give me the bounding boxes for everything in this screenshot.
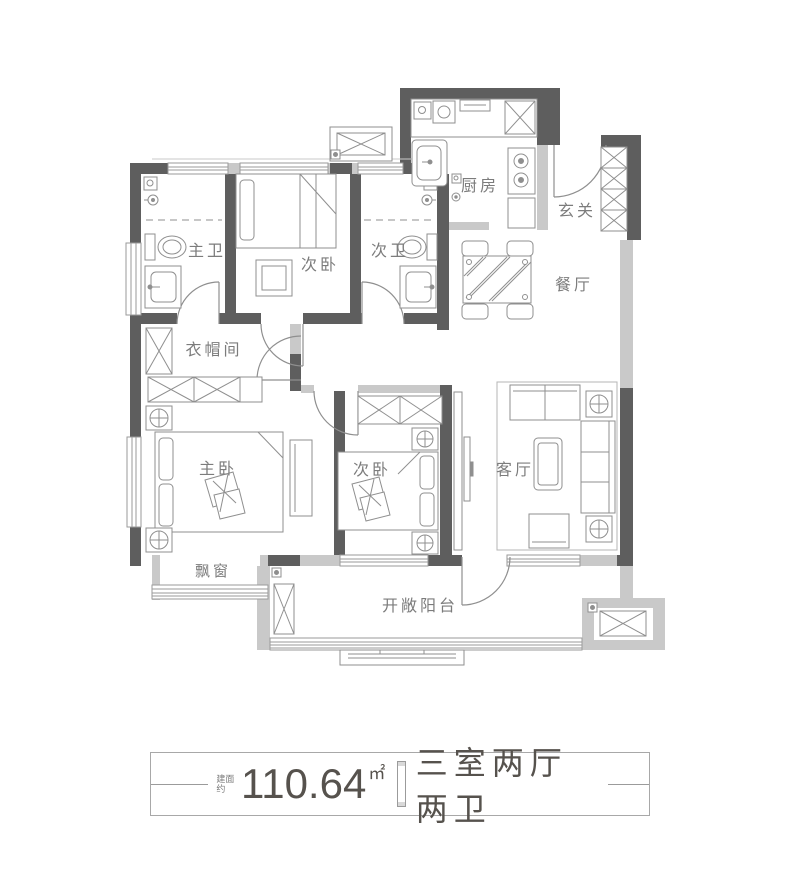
kitchen-fixtures [411, 99, 537, 228]
bedroom-bottom-furniture [338, 428, 438, 554]
fridge-icon [505, 101, 535, 134]
room-label-living: 客厅 [496, 461, 534, 479]
dining-set [462, 241, 533, 319]
room-label-master-bath: 主卫 [188, 242, 226, 260]
balcony-step [340, 650, 464, 665]
window-top-master-bath [168, 163, 228, 174]
room-label-kitchen: 厨房 [461, 177, 499, 195]
plant-icon [586, 391, 612, 417]
room-label-dining: 餐厅 [555, 276, 593, 294]
elevator-shaft-hatch [601, 147, 627, 231]
door-master-bath [177, 282, 219, 324]
window-bottom-bedroom [340, 555, 428, 566]
window-top-bedroom [240, 163, 328, 174]
nightstand-lamp-icon [412, 428, 438, 450]
door-second-bath [362, 282, 404, 324]
chair [462, 304, 488, 319]
door-balcony [462, 557, 510, 605]
window-top-second-bath [358, 163, 403, 174]
room-label-second-bath: 次卫 [371, 242, 409, 260]
bed-bench [290, 440, 312, 516]
nightstand-lamp-icon [146, 406, 172, 430]
bed [155, 432, 283, 532]
chair [507, 241, 533, 256]
caption-layout-text: 三室两厅两卫 [416, 738, 598, 830]
chair [507, 304, 533, 319]
room-label-bay-window: 飘窗 [195, 562, 231, 580]
caption-divider [397, 761, 405, 807]
door-entry [554, 145, 606, 197]
room-label-cloakroom: 衣帽间 [185, 341, 242, 359]
room-label-foyer: 玄关 [558, 202, 596, 220]
caption-area-unit: ㎡ [368, 759, 385, 784]
caption-area-value: 110.64 [241, 760, 366, 808]
window-bottom-living [507, 555, 580, 566]
room-label-balcony: 开敞阳台 [382, 597, 458, 615]
caption-area-prefix: 建面约 [216, 774, 238, 794]
dining-table [463, 256, 531, 303]
room-label-bedroom-top: 次卧 [301, 256, 339, 274]
room-label-master-bedroom: 主卧 [199, 460, 237, 478]
caption-rule-right [608, 784, 649, 785]
stove-icon [508, 148, 535, 194]
bed [236, 174, 336, 248]
washbasin-icon [400, 266, 436, 308]
caption-box: 建面约 110.64 ㎡ 三室两厅两卫 [150, 752, 650, 816]
sofa [581, 421, 615, 513]
toilet-icon [145, 234, 186, 260]
kitchen-sink-icon [412, 140, 447, 186]
balcony-ac-left [272, 568, 294, 634]
loveseat [510, 385, 580, 420]
bay-window-glass [152, 585, 268, 599]
nightstand [256, 260, 292, 296]
armchair [529, 514, 569, 548]
coffee-table [534, 438, 562, 490]
master-bedroom-furniture [146, 406, 312, 552]
caption-rule-left [151, 784, 208, 785]
ac-platform-top [330, 127, 392, 161]
plant-icon [586, 516, 612, 542]
washbasin-icon [145, 266, 181, 308]
tv-icon [464, 437, 470, 501]
chair [462, 241, 488, 256]
floor-plan-page: 主卫 次卧 次卫 厨房 玄关 餐厅 衣帽间 主卧 次卧 客厅 飘窗 开敞阳台 建… [0, 0, 800, 874]
tv-cabinet [454, 392, 462, 550]
bedroom-top-furniture [236, 174, 336, 296]
window-left-master-bath [126, 243, 141, 315]
room-label-bedroom-bottom: 次卧 [353, 461, 391, 479]
balcony-railing [270, 638, 582, 650]
bedroom-bottom-wardrobe [358, 396, 442, 424]
nightstand-lamp-icon [412, 532, 438, 554]
floor-plan-drawing: 主卫 次卧 次卫 厨房 玄关 餐厅 衣帽间 主卧 次卧 客厅 飘窗 开敞阳台 [0, 0, 800, 874]
cloakroom-wardrobe [146, 328, 262, 402]
living-room-furniture [454, 382, 617, 550]
window-left-master-bedroom [127, 437, 141, 527]
nightstand-lamp-icon [146, 528, 172, 552]
